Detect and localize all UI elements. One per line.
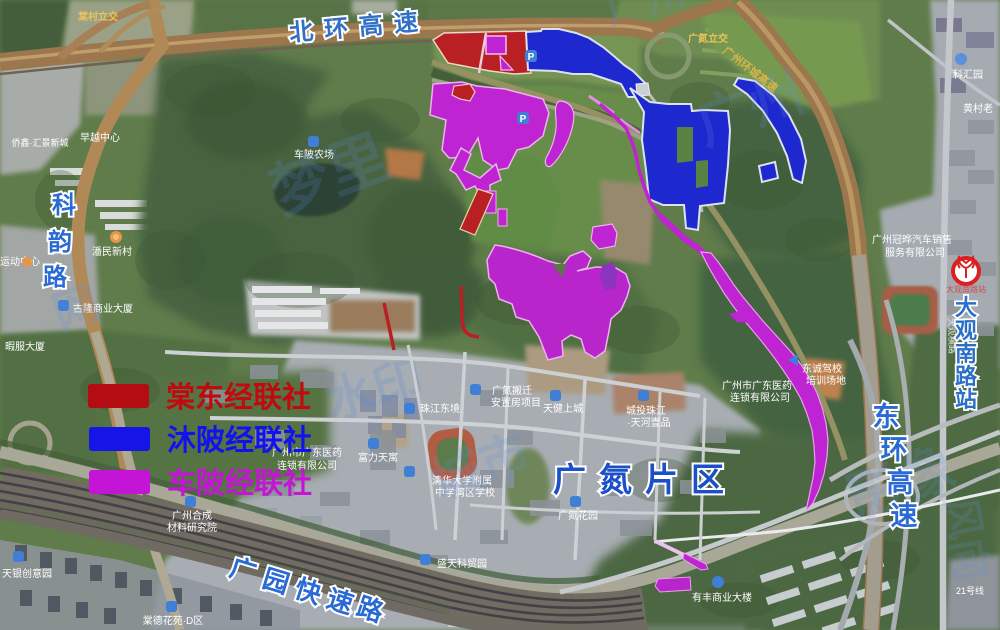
svg-text:棠德花苑·D区: 棠德花苑·D区 [143,614,204,627]
svg-text:速: 速 [891,501,918,531]
svg-text:广氮片区: 广氮片区 [553,461,737,498]
svg-text:广州冠晔汽车销售: 广州冠晔汽车销售 [872,233,952,246]
svg-text:服务有限公司: 服务有限公司 [885,246,945,259]
svg-text:材料研究院: 材料研究院 [167,521,217,534]
svg-text:棠东经联社: 棠东经联社 [165,380,311,414]
svg-text:大观南路站: 大观南路站 [946,284,986,294]
svg-text:车陂经联社: 车陂经联社 [167,466,312,500]
svg-text:南: 南 [955,341,977,366]
svg-text:P: P [528,52,535,63]
svg-text:培训场地: 培训场地 [806,374,846,387]
svg-text:早越中心: 早越中心 [80,131,120,144]
svg-text:环: 环 [881,435,908,465]
svg-text:富力天寓: 富力天寓 [358,451,398,464]
svg-text:广氮花园: 广氮花园 [558,509,598,522]
svg-text:盛天科贸园: 盛天科贸园 [437,557,487,570]
svg-text:大: 大 [955,295,977,320]
svg-text:东: 东 [873,401,900,432]
svg-text:暇服大厦: 暇服大厦 [5,340,45,353]
svg-text:潘民新村: 潘民新村 [92,245,132,258]
svg-text:广氮搬迁: 广氮搬迁 [492,384,532,397]
svg-text:站: 站 [955,387,977,412]
svg-text:·天河壹品: ·天河壹品 [627,416,670,429]
svg-text:珠江东境: 珠江东境 [420,402,460,415]
svg-text:黄村老: 黄村老 [963,102,993,115]
svg-text:天银创意园: 天银创意园 [2,567,52,580]
svg-text:广州市广东医药: 广州市广东医药 [722,379,792,392]
svg-text:韵: 韵 [48,228,72,256]
svg-text:广氮立交: 广氮立交 [688,32,728,45]
svg-text:运动中心: 运动中心 [0,255,40,268]
svg-text:观: 观 [955,318,977,343]
svg-text:棠村立交: 棠村立交 [77,10,118,23]
svg-text:P: P [520,114,527,125]
svg-text:东诚驾校: 东诚驾校 [802,362,842,375]
svg-text:城投珠江: 城投珠江 [626,404,666,417]
svg-text:路: 路 [43,263,68,291]
svg-text:沐陂经联社: 沐陂经联社 [167,423,312,457]
svg-text:侨鑫·汇景新城: 侨鑫·汇景新城 [12,137,69,148]
svg-text:广州合成: 广州合成 [172,509,212,522]
svg-text:高: 高 [887,467,914,498]
svg-text:连锁有限公司: 连锁有限公司 [730,391,790,404]
svg-text:大观横路: 大观横路 [946,318,958,354]
svg-text:天健上城: 天健上城 [543,403,583,415]
svg-text:有丰商业大楼: 有丰商业大楼 [692,591,752,604]
svg-text:路: 路 [955,364,978,389]
svg-text:科: 科 [52,192,76,219]
svg-text:科汇园: 科汇园 [953,68,983,81]
svg-text:安置房项目: 安置房项目 [491,396,541,409]
svg-text:21号线: 21号线 [956,585,984,596]
